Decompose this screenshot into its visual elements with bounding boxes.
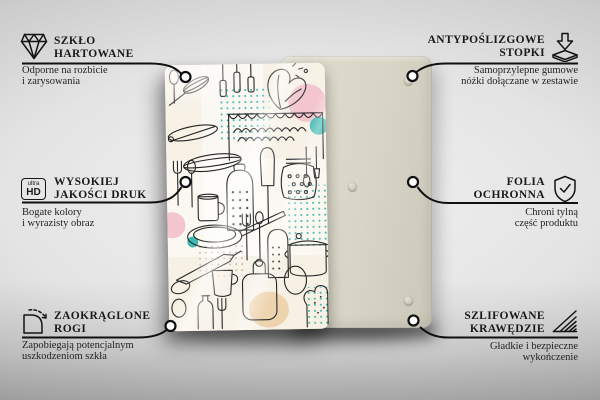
feature-ground-edges: SZLIFOWANE KRAWĘDZIE Gładkie i bezpieczn… [408, 306, 578, 366]
desc-line: i zarysowania [22, 77, 108, 88]
feature-title: ZAOKRĄGLONE ROGI [54, 310, 150, 335]
desc-line: Odporne na rozbicie [22, 66, 108, 77]
desc-line: i wyrazisty obraz [22, 219, 94, 230]
feature-title: ANTYPOŚLIZGOWE STOPKI [428, 34, 545, 59]
anti-slip-pad-icon [552, 32, 578, 62]
feature-description: Chroni tylną część produktu [515, 208, 578, 229]
rubber-foot [348, 182, 357, 191]
hd-label: HD [22, 188, 45, 198]
feature-description: Bogate kolory i wyrazisty obraz [22, 208, 94, 229]
title-line: ROGI [54, 323, 150, 336]
feature-description: Gładkie i bezpieczne wykończenie [490, 342, 578, 363]
desc-line: Bogate kolory [22, 208, 94, 219]
rounded-corner-icon [20, 307, 48, 335]
ground-edges-icon [552, 309, 578, 333]
shield-check-icon [553, 175, 577, 203]
title-line: WYSOKIEJ [54, 176, 147, 189]
feature-print-quality: ultra HD WYSOKIEJ JAKOŚCI DRUK Bogate ko… [20, 176, 190, 236]
title-line: ANTYPOŚLIZGOWE [428, 34, 545, 47]
desc-line: Chroni tylną [515, 208, 578, 219]
title-line: HARTOWANE [54, 48, 134, 61]
feature-title: SZLIFOWANE KRAWĘDZIE [464, 310, 545, 335]
feature-protective-film: FOLIA OCHRONNA Chroni tylną część produk… [408, 174, 578, 234]
title-line: KRAWĘDZIE [464, 323, 545, 336]
desc-line: część produktu [515, 219, 578, 230]
feature-rounded-corners: ZAOKRĄGLONE ROGI Zapobiegają potencjalny… [20, 306, 190, 366]
feature-anti-slip-feet: ANTYPOŚLIZGOWE STOPKI Samoprzylepne gumo… [408, 32, 578, 92]
feature-tempered-glass: SZKŁO HARTOWANE Odporne na rozbicie i za… [20, 33, 190, 93]
feature-description: Zapobiegają potencjalnym uszkodzeniom sz… [22, 341, 134, 362]
title-line: FOLIA [473, 176, 545, 189]
title-line: ZAOKRĄGLONE [54, 310, 150, 323]
title-line: OCHRONNA [473, 189, 545, 202]
title-line: JAKOŚCI DRUK [54, 189, 147, 202]
diamond-icon [20, 33, 48, 60]
title-line: SZKŁO [54, 35, 134, 48]
feature-title: SZKŁO HARTOWANE [54, 35, 134, 60]
feature-title: WYSOKIEJ JAKOŚCI DRUK [54, 176, 147, 201]
feature-title: FOLIA OCHRONNA [473, 176, 545, 201]
desc-line: Gładkie i bezpieczne [490, 342, 578, 353]
desc-line: Zapobiegają potencjalnym [22, 341, 134, 352]
desc-line: nóżki dołączane w zestawie [461, 77, 578, 88]
desc-line: uszkodzeniom szkła [22, 352, 134, 363]
ultra-hd-icon: ultra HD [21, 178, 46, 200]
desc-line: Samoprzylepne gumowe [461, 66, 578, 77]
title-line: SZLIFOWANE [464, 310, 545, 323]
feature-description: Odporne na rozbicie i zarysowania [22, 66, 108, 87]
rubber-foot [404, 296, 413, 305]
product-infographic: SZKŁO HARTOWANE Odporne na rozbicie i za… [0, 0, 600, 400]
title-line: STOPKI [428, 47, 545, 60]
feature-description: Samoprzylepne gumowe nóżki dołączane w z… [461, 66, 578, 87]
desc-line: wykończenie [490, 353, 578, 364]
